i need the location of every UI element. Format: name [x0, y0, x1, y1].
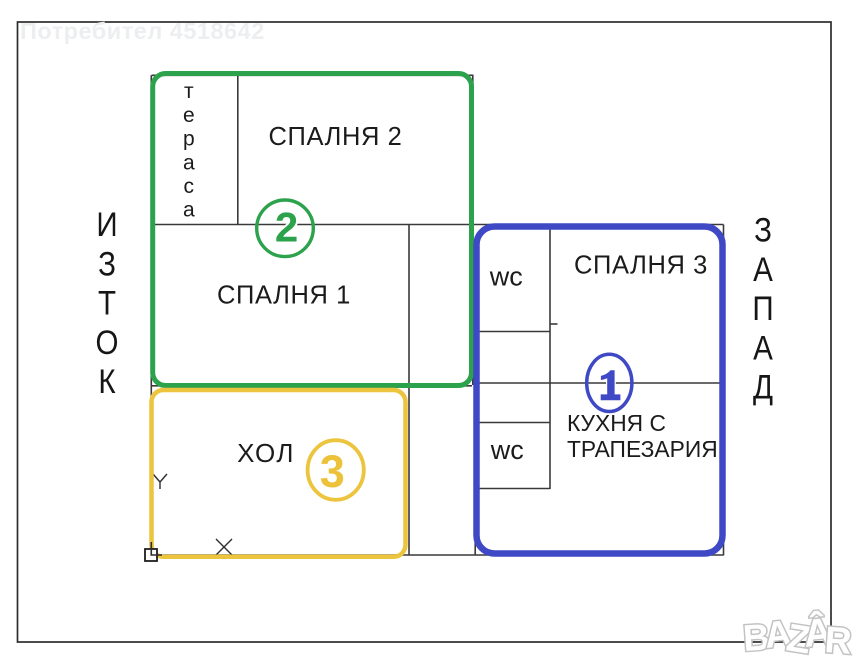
svg-text:R: R [823, 619, 853, 662]
svg-text:Т: Т [98, 284, 116, 322]
svg-text:Потребител 4518642: Потребител 4518642 [20, 18, 265, 44]
svg-text:З: З [98, 244, 116, 282]
svg-text:ТРАПЕЗАРИЯ: ТРАПЕЗАРИЯ [567, 436, 718, 462]
svg-text:И: И [96, 205, 117, 243]
svg-text:т: т [184, 80, 194, 103]
svg-text:П: П [752, 289, 773, 327]
svg-text:СПАЛНЯ 3: СПАЛНЯ 3 [574, 251, 708, 279]
svg-text:р: р [183, 128, 195, 151]
svg-text:КУХНЯ С: КУХНЯ С [567, 410, 666, 436]
svg-text:О: О [95, 323, 118, 361]
svg-text:wc: wc [490, 435, 524, 465]
svg-text:А: А [753, 328, 773, 366]
svg-text:СПАЛНЯ 1: СПАЛНЯ 1 [217, 281, 351, 309]
svg-text:3: 3 [320, 446, 345, 497]
svg-text:а: а [183, 151, 195, 174]
svg-text:К: К [98, 362, 116, 400]
svg-text:З: З [754, 211, 772, 249]
svg-text:а: а [183, 199, 195, 222]
svg-text:Д: Д [753, 368, 773, 406]
svg-text:СПАЛНЯ 2: СПАЛНЯ 2 [269, 123, 403, 151]
svg-text:е: е [183, 104, 195, 127]
svg-text:2: 2 [275, 203, 298, 250]
svg-text:с: с [184, 175, 195, 198]
svg-text:ХОЛ: ХОЛ [237, 438, 295, 468]
svg-text:wc: wc [489, 261, 523, 291]
svg-text:А: А [753, 250, 773, 288]
